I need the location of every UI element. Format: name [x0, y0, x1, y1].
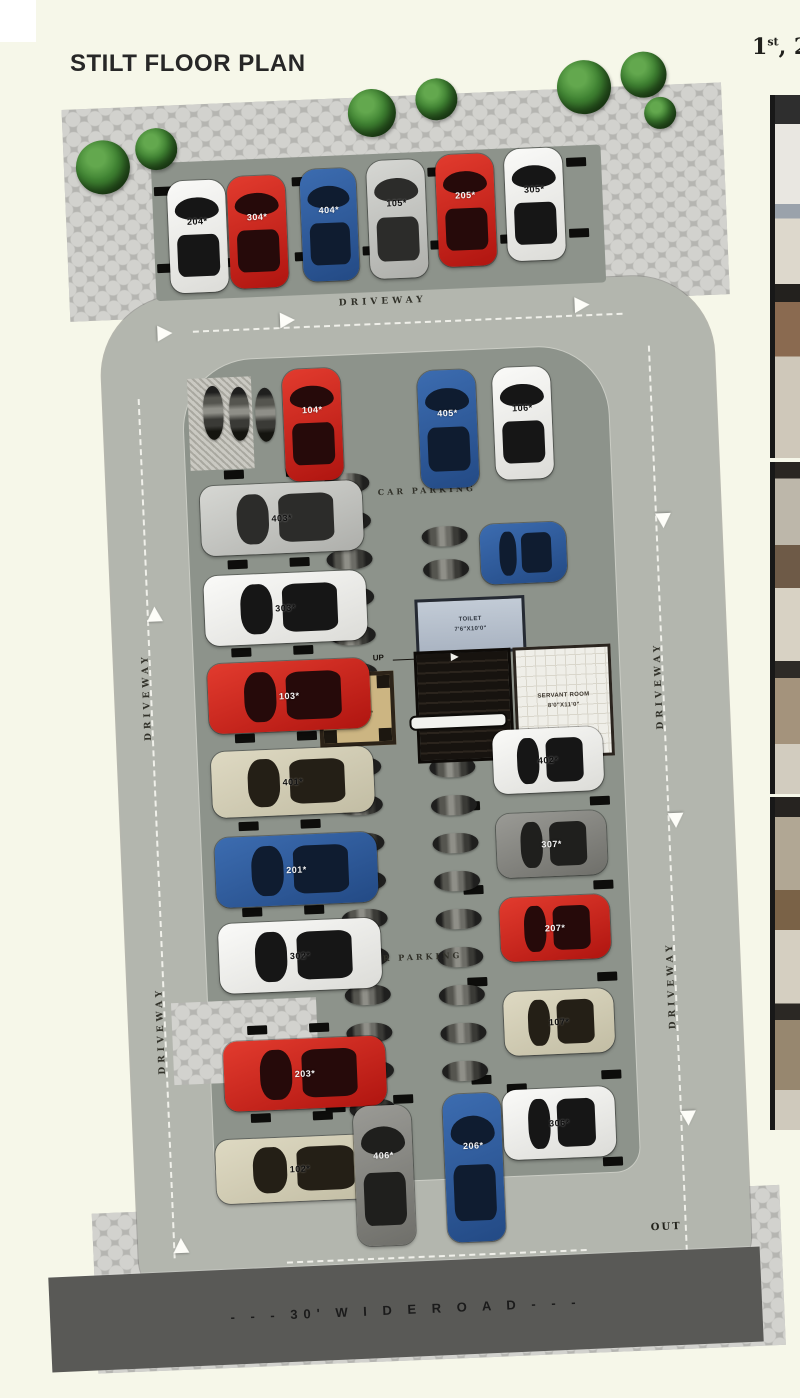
car-number-label: 304* — [228, 211, 286, 223]
car-number-label: 205* — [436, 189, 494, 201]
car-103: 103* — [207, 658, 372, 735]
parking-divider — [597, 971, 617, 981]
parking-divider — [224, 470, 244, 480]
car-206: 206* — [442, 1093, 506, 1243]
driveway-arrow-icon — [280, 312, 296, 329]
parking-divider — [569, 228, 589, 238]
servant-room-dims: 8'0"X11'0" — [548, 701, 580, 712]
car-203: 203* — [223, 1035, 388, 1112]
car-number-label: 203* — [224, 1065, 386, 1082]
parking-divider — [300, 819, 320, 829]
car-number-label: 105* — [367, 197, 425, 209]
car-207: 207* — [499, 894, 612, 963]
driveway-arrow-icon — [157, 325, 173, 342]
heading-number: 1 — [752, 34, 767, 60]
car-number-label: 103* — [208, 688, 370, 705]
toilet-dims: 7'6"X10'0" — [454, 625, 487, 636]
driveway-arrow-icon — [680, 1110, 697, 1126]
parking-divider — [566, 157, 586, 167]
toilet-room: TOILET 7'6"X10'0" — [414, 595, 526, 656]
car-406: 406* — [352, 1104, 416, 1246]
out-marker: OUT — [651, 1221, 682, 1233]
car-number-label: 303* — [204, 600, 366, 617]
car-number-label: 201* — [215, 861, 377, 878]
parking-divider — [235, 733, 255, 743]
car-106: 106* — [492, 366, 555, 480]
car-number-label: 406* — [354, 1149, 412, 1161]
parking-divider — [293, 645, 313, 655]
car-304: 304* — [226, 175, 289, 289]
car-number-label: 305* — [505, 183, 563, 195]
page-corner-white — [0, 0, 36, 42]
parking-divider — [601, 1069, 621, 1079]
road-label: - - - 30' W I D E R O A D - - - — [230, 1294, 582, 1324]
parking-divider — [590, 796, 610, 806]
floorplan-thumbnail-partial — [770, 462, 800, 794]
parking-divider — [593, 880, 613, 890]
stilt-floor-plan-drawing: TOILET 7'6"X10'0" SERVANT ROOM 8'0"X11'0… — [32, 44, 785, 1342]
car-number-label: 307* — [497, 837, 607, 852]
parking-divider — [393, 1094, 413, 1104]
car-305: 305* — [504, 147, 567, 261]
parking-divider — [242, 907, 262, 917]
parking-divider — [289, 557, 309, 567]
car-number-label: 107* — [504, 1015, 614, 1030]
driveway-arrow-icon — [655, 513, 672, 529]
parking-divider — [247, 1025, 267, 1035]
car-204: 204* — [167, 179, 230, 293]
car-107: 107* — [503, 988, 616, 1057]
floorplan-thumbnail-partial — [770, 95, 800, 458]
driveway-arrow-icon — [574, 297, 590, 314]
parking-divider — [228, 560, 248, 570]
car-number-label: 306* — [503, 1116, 615, 1131]
car-number-label: 204* — [168, 215, 226, 227]
parking-divider — [297, 731, 317, 741]
driveway-arrow-icon — [173, 1238, 190, 1254]
parking-divider — [304, 905, 324, 915]
car-303: 303* — [203, 570, 368, 647]
stilt-floor-plan-page: { "page": {"title": "STILT FLOOR PLAN"},… — [0, 0, 800, 1398]
up-stairs-label: UP — [373, 653, 384, 662]
parking-divider — [309, 1023, 329, 1033]
car-306: 306* — [502, 1086, 617, 1161]
car-number-label: 106* — [493, 402, 551, 414]
parking-divider — [231, 648, 251, 658]
car-number-label: 403* — [201, 510, 363, 527]
car-307: 307* — [495, 810, 608, 879]
car-402: 402* — [492, 726, 605, 795]
car-number-label: 402* — [493, 753, 603, 768]
car-number-label: 104* — [283, 403, 341, 415]
car-unlabeled — [479, 521, 567, 585]
car-405: 405* — [417, 369, 480, 489]
car-number-label: 207* — [500, 921, 610, 936]
car-number-label: 401* — [212, 774, 374, 791]
car-number-label: 302* — [219, 947, 381, 964]
car-number-label: 206* — [444, 1140, 502, 1152]
parking-divider — [603, 1156, 623, 1166]
driveway-arrow-icon — [146, 606, 163, 622]
car-number-label: 405* — [418, 407, 476, 419]
car-205: 205* — [435, 153, 498, 267]
car-104: 104* — [282, 368, 345, 482]
car-105: 105* — [366, 159, 429, 279]
car-number-label: 404* — [301, 204, 357, 216]
toilet-label: TOILET 7'6"X10'0" — [417, 598, 523, 652]
parking-divider — [238, 821, 258, 831]
car-403: 403* — [199, 480, 364, 557]
heading-ordinal: st — [767, 36, 778, 49]
next-section-heading-partial: 1st, 2 — [752, 34, 800, 60]
driveway-arrow-icon — [667, 813, 684, 829]
parking-divider — [251, 1113, 271, 1123]
heading-rest: , 2 — [779, 34, 800, 60]
car-404: 404* — [299, 168, 360, 282]
car-302: 302* — [218, 917, 383, 994]
car-401: 401* — [211, 746, 376, 819]
car-201: 201* — [214, 831, 379, 908]
